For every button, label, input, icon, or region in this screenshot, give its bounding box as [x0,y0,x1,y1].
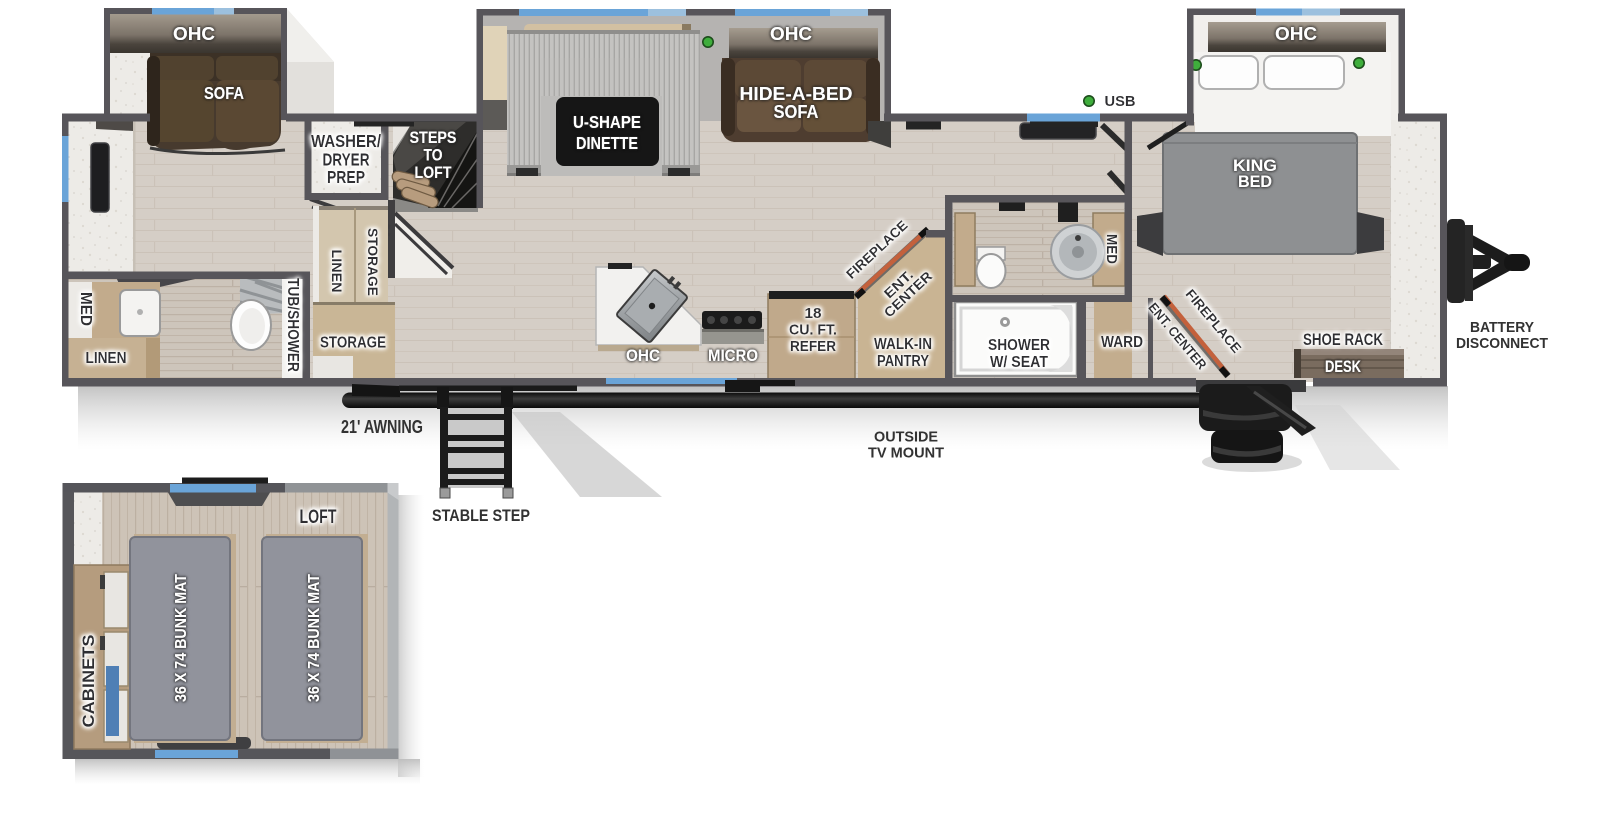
svg-text:21' AWNING: 21' AWNING [341,417,423,437]
svg-text:OHC: OHC [173,24,215,44]
svg-text:LOFT: LOFT [415,163,453,182]
svg-text:LINEN: LINEN [86,350,127,367]
svg-text:DINETTE: DINETTE [576,133,638,153]
svg-text:WASHER/: WASHER/ [311,131,381,151]
svg-text:BED: BED [1238,172,1272,191]
svg-text:TV MOUNT: TV MOUNT [868,445,944,462]
svg-text:LOFT: LOFT [300,507,337,528]
svg-text:SHOWER: SHOWER [988,337,1050,354]
svg-text:WARD: WARD [1101,334,1143,351]
svg-text:TO: TO [424,146,443,165]
svg-text:SHOE RACK: SHOE RACK [1303,331,1383,349]
svg-text:HIDE-A-BED: HIDE-A-BED [740,84,853,104]
svg-text:U-SHAPE: U-SHAPE [573,112,641,132]
svg-text:OHC: OHC [626,347,660,365]
svg-text:OHC: OHC [1275,24,1317,44]
svg-text:WALK-IN: WALK-IN [874,336,932,353]
svg-text:SOFA: SOFA [204,83,244,103]
svg-text:STABLE STEP: STABLE STEP [432,506,530,525]
svg-text:STEPS: STEPS [410,128,457,147]
svg-text:TUB/SHOWER: TUB/SHOWER [284,278,301,372]
svg-text:USB: USB [1105,93,1136,110]
svg-text:CU. FT.: CU. FT. [789,322,837,339]
svg-text:CABINETS: CABINETS [79,635,98,728]
svg-text:W/ SEAT: W/ SEAT [990,354,1048,371]
svg-text:MICRO: MICRO [708,347,758,365]
svg-text:MED: MED [1103,234,1120,264]
svg-text:PANTRY: PANTRY [877,353,930,370]
svg-text:36 X 74 BUNK MAT: 36 X 74 BUNK MAT [306,574,323,702]
svg-text:REFER: REFER [790,338,836,355]
svg-text:OUTSIDE: OUTSIDE [874,429,938,446]
svg-text:PREP: PREP [327,167,365,187]
svg-text:18: 18 [805,305,822,322]
svg-text:DESK: DESK [1325,358,1361,376]
svg-text:36 X 74 BUNK MAT: 36 X 74 BUNK MAT [173,574,190,702]
svg-text:BATTERY: BATTERY [1470,319,1534,336]
svg-text:STORAGE: STORAGE [365,228,380,296]
svg-text:DISCONNECT: DISCONNECT [1456,335,1548,352]
svg-text:MED: MED [77,292,94,326]
svg-text:LINEN: LINEN [329,250,344,293]
svg-text:SOFA: SOFA [774,102,819,122]
svg-text:STORAGE: STORAGE [320,335,386,352]
svg-text:OHC: OHC [770,24,812,44]
